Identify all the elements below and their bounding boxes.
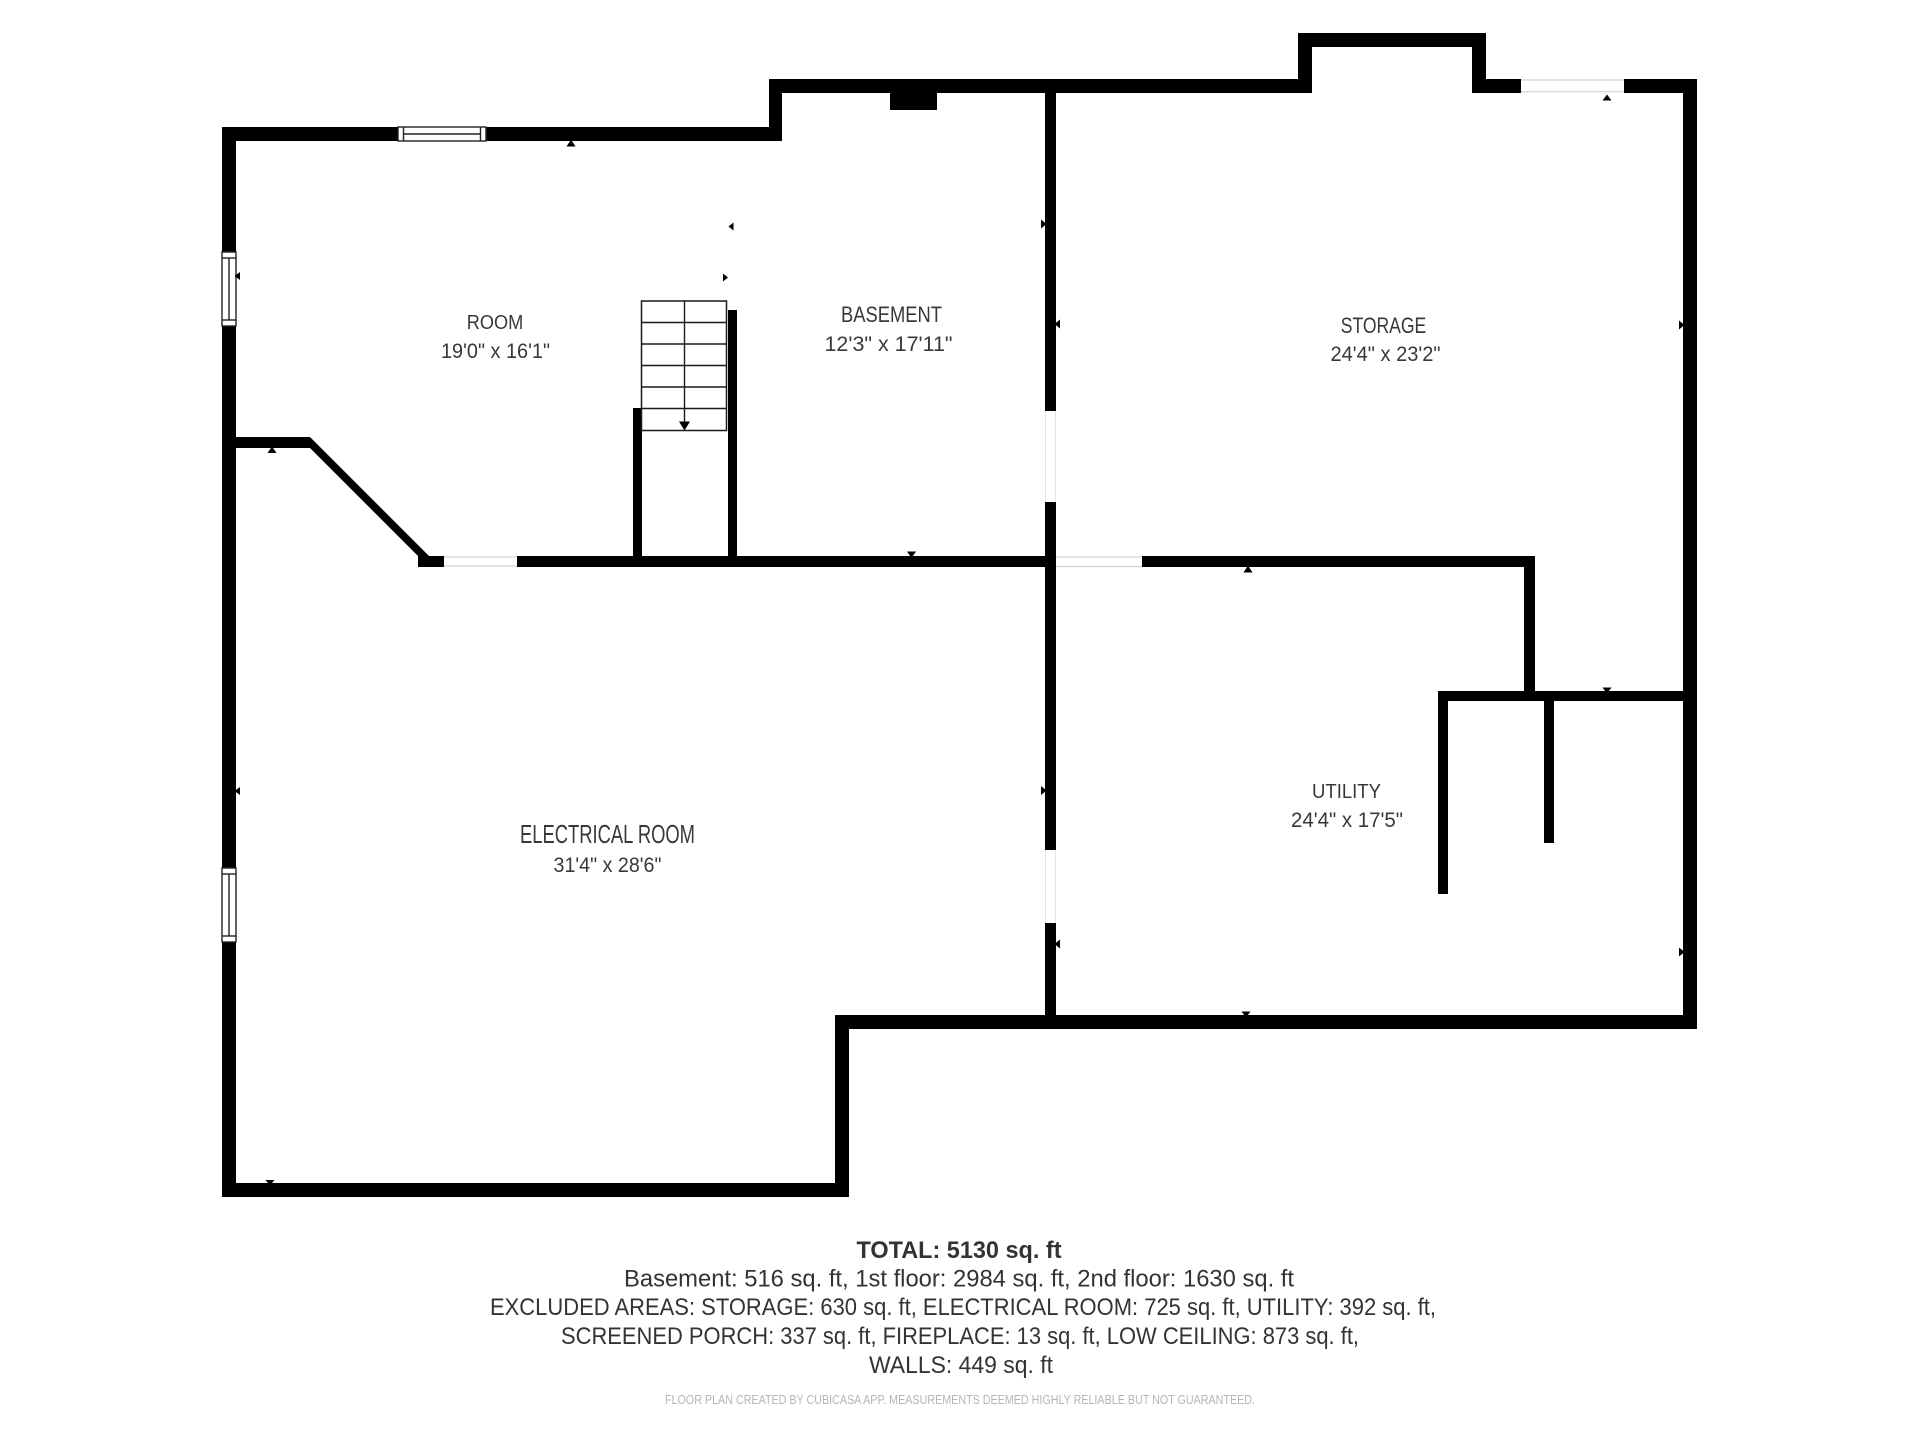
svg-text:UTILITY: UTILITY [1312, 780, 1381, 803]
svg-text:24'4" x 23'2": 24'4" x 23'2" [1331, 343, 1441, 366]
svg-text:12'3" x 17'11": 12'3" x 17'11" [825, 333, 953, 356]
svg-text:31'4" x 28'6": 31'4" x 28'6" [554, 854, 662, 877]
svg-text:SCREENED PORCH: 337 sq. ft, FI: SCREENED PORCH: 337 sq. ft, FIREPLACE: 1… [561, 1323, 1359, 1350]
svg-text:TOTAL: 5130 sq. ft: TOTAL: 5130 sq. ft [857, 1237, 1062, 1264]
svg-text:WALLS: 449 sq. ft: WALLS: 449 sq. ft [869, 1352, 1053, 1379]
svg-text:Basement: 516 sq. ft, 1st floo: Basement: 516 sq. ft, 1st floor: 2984 sq… [624, 1266, 1294, 1293]
svg-text:BASEMENT: BASEMENT [841, 302, 942, 327]
svg-text:24'4" x 17'5": 24'4" x 17'5" [1291, 809, 1403, 832]
svg-text:EXCLUDED AREAS: STORAGE: 630 s: EXCLUDED AREAS: STORAGE: 630 sq. ft, ELE… [490, 1294, 1436, 1321]
svg-text:19'0" x 16'1": 19'0" x 16'1" [441, 340, 550, 363]
svg-text:STORAGE: STORAGE [1341, 313, 1427, 338]
svg-text:ROOM: ROOM [467, 312, 524, 334]
svg-text:ELECTRICAL ROOM: ELECTRICAL ROOM [520, 821, 695, 849]
svg-text:FLOOR PLAN CREATED BY CUBICASA: FLOOR PLAN CREATED BY CUBICASA APP. MEAS… [665, 1392, 1255, 1407]
